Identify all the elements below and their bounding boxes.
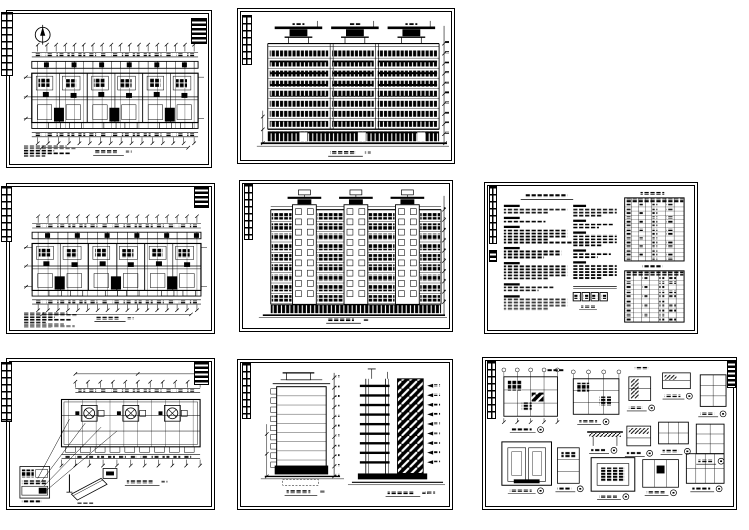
construction-details-drawing (488, 363, 731, 504)
sheet-index-strip (242, 15, 252, 65)
title-block (194, 361, 209, 385)
title-block (489, 250, 497, 262)
title-block (194, 186, 209, 208)
sheet-side-elevation-section (237, 359, 453, 510)
sheet-index-strip (489, 186, 497, 244)
sheet-design-notes (484, 182, 698, 334)
design-notes-drawing (490, 188, 692, 328)
sheet-front-elevation (237, 8, 455, 164)
sheet-ground-floor-plan (6, 10, 212, 168)
sheet-index-strip (1, 362, 12, 422)
sheet-index-strip (487, 361, 496, 419)
front-elevation-drawing (243, 14, 449, 158)
title-block (191, 18, 207, 44)
sheet-rear-elevation (239, 180, 453, 332)
ground-floor-plan-drawing (12, 16, 206, 162)
title-block (727, 360, 736, 388)
sheet-standard-floor-plan (6, 183, 215, 334)
rear-elevation-drawing (245, 186, 447, 326)
sheet-roof-plan (6, 358, 215, 510)
cad-drawing-set-canvas (0, 0, 749, 530)
sheet-index-strip (242, 363, 251, 419)
roof-plan-drawing (12, 364, 209, 504)
sheet-construction-details (482, 357, 737, 510)
sheet-index-strip (1, 186, 12, 242)
sheet-index-strip (244, 184, 253, 240)
side-elevation-section-drawing (243, 365, 447, 504)
standard-floor-plan-drawing (12, 189, 209, 328)
sheet-index-strip (1, 12, 13, 76)
